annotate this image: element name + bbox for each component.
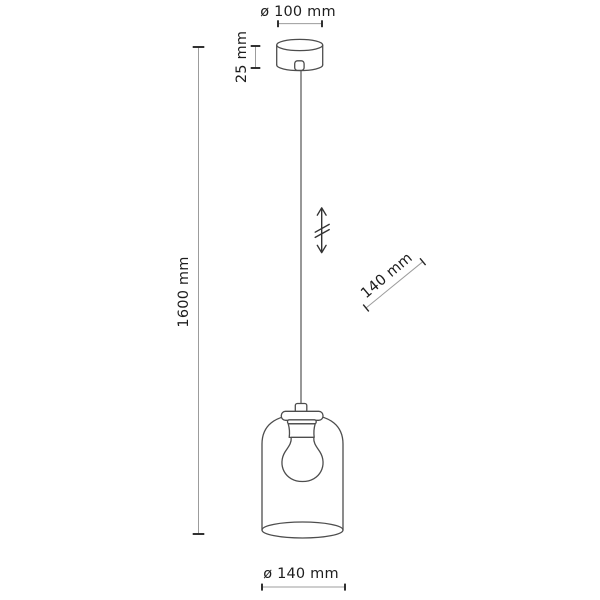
canopy-diameter-dimension-line: [278, 20, 322, 27]
canopy-diameter-label: ø 100 mm: [260, 4, 336, 20]
cord-grip: [295, 61, 304, 71]
total-height-dimension-line: [193, 47, 205, 534]
lamp-holder: [281, 404, 323, 438]
socket-flange: [281, 411, 323, 420]
shade-diameter-label: ø 140 mm: [263, 566, 339, 582]
light-bulb: [282, 437, 323, 481]
total-height-label: 1600 mm: [176, 256, 192, 327]
adjustable-height-arrow-icon: [315, 208, 329, 253]
dimension-diagram: ø 100 mm 25 mm 1600 mm 140 mm ø 140 mm: [0, 0, 600, 600]
shade-bottom-rim: [262, 522, 343, 538]
lamp-line-drawing: [0, 0, 600, 600]
shade-diameter-dimension-line: [262, 584, 345, 591]
lamp-socket: [288, 424, 315, 438]
canopy-height-dimension-line: [251, 46, 261, 68]
ceiling-canopy: [277, 39, 323, 70]
canopy-height-label: 25 mm: [234, 31, 250, 83]
